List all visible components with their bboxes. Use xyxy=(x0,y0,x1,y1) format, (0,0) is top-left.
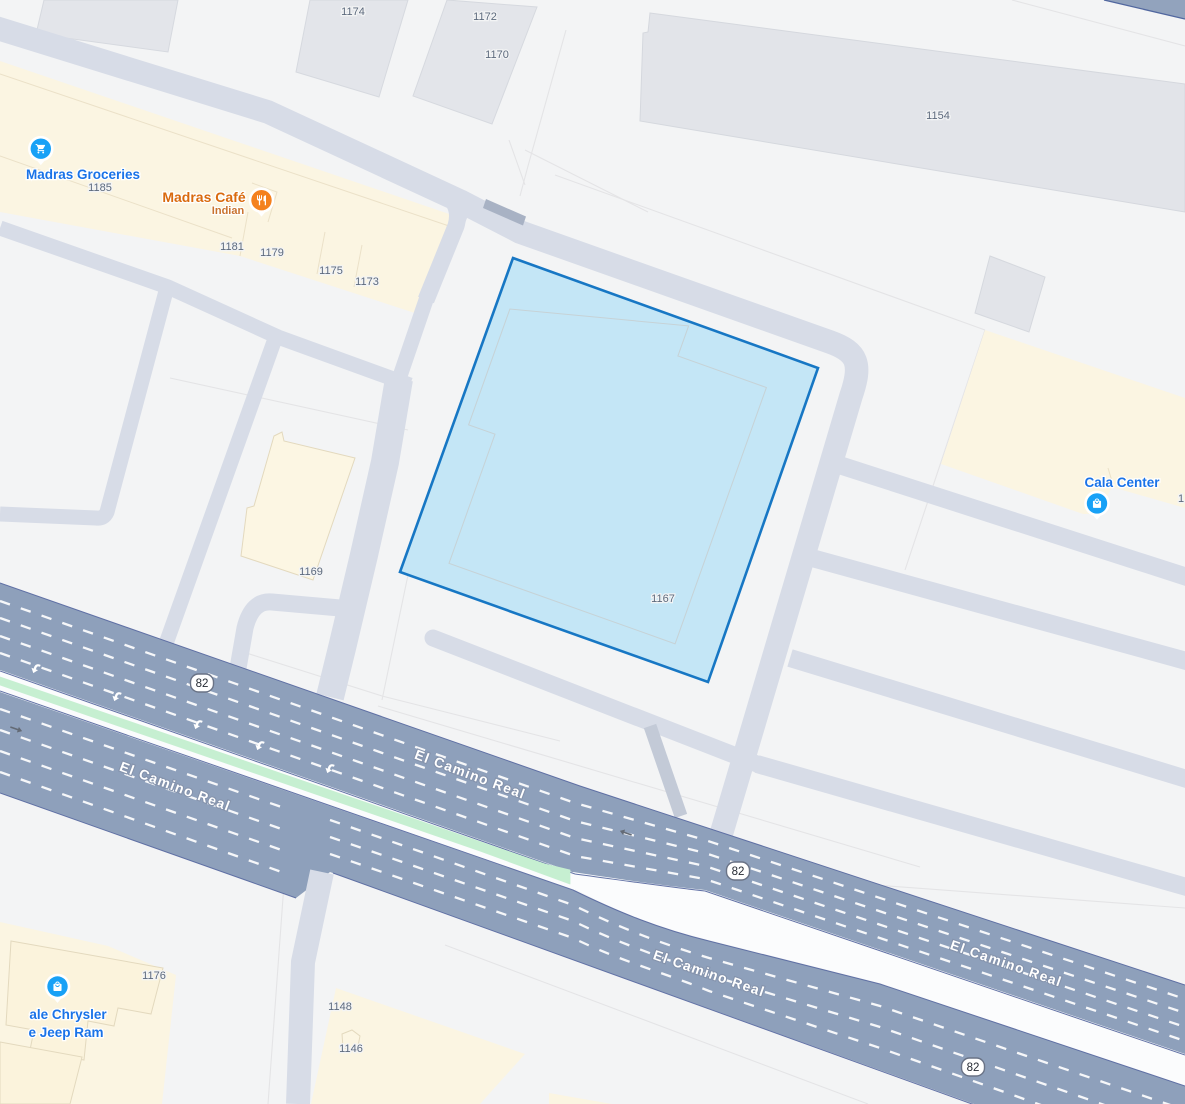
svg-text:1148: 1148 xyxy=(328,1001,352,1013)
svg-text:Madras Groceries: Madras Groceries xyxy=(26,167,140,182)
svg-text:1181: 1181 xyxy=(220,241,244,253)
svg-text:1154: 1154 xyxy=(926,110,950,122)
svg-text:82: 82 xyxy=(732,866,745,878)
svg-text:1: 1 xyxy=(1178,493,1184,505)
svg-text:1172: 1172 xyxy=(473,11,497,23)
svg-text:1185: 1185 xyxy=(88,182,112,194)
svg-text:1176: 1176 xyxy=(142,970,166,982)
svg-text:82: 82 xyxy=(967,1062,980,1074)
svg-text:1174: 1174 xyxy=(341,6,365,18)
svg-text:1170: 1170 xyxy=(485,49,509,61)
svg-text:Madras Café: Madras Café xyxy=(162,189,245,205)
svg-text:1173: 1173 xyxy=(355,276,379,288)
svg-text:1146: 1146 xyxy=(339,1043,363,1055)
svg-text:ale Chrysler: ale Chrysler xyxy=(29,1007,107,1022)
svg-text:1169: 1169 xyxy=(299,566,323,578)
svg-text:82: 82 xyxy=(196,678,209,690)
svg-text:1179: 1179 xyxy=(260,247,284,259)
svg-text:1167: 1167 xyxy=(651,593,675,605)
svg-text:Cala Center: Cala Center xyxy=(1084,475,1160,490)
svg-text:1175: 1175 xyxy=(319,265,343,277)
svg-text:e Jeep Ram: e Jeep Ram xyxy=(28,1025,103,1040)
svg-text:Indian: Indian xyxy=(212,205,245,217)
